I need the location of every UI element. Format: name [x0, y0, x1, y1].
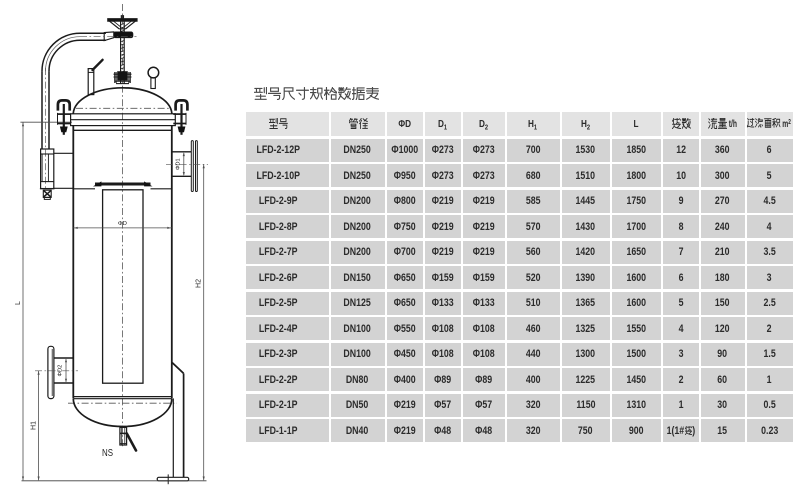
svg-text:H2: H2 [196, 279, 203, 288]
svg-text:H1: H1 [30, 421, 37, 430]
svg-text:ΦD: ΦD [118, 221, 127, 227]
svg-text:ΦD2: ΦD2 [57, 365, 63, 377]
svg-text:NS: NS [102, 447, 113, 459]
svg-text:ΦD1: ΦD1 [176, 158, 182, 170]
svg-text:L: L [15, 301, 22, 305]
